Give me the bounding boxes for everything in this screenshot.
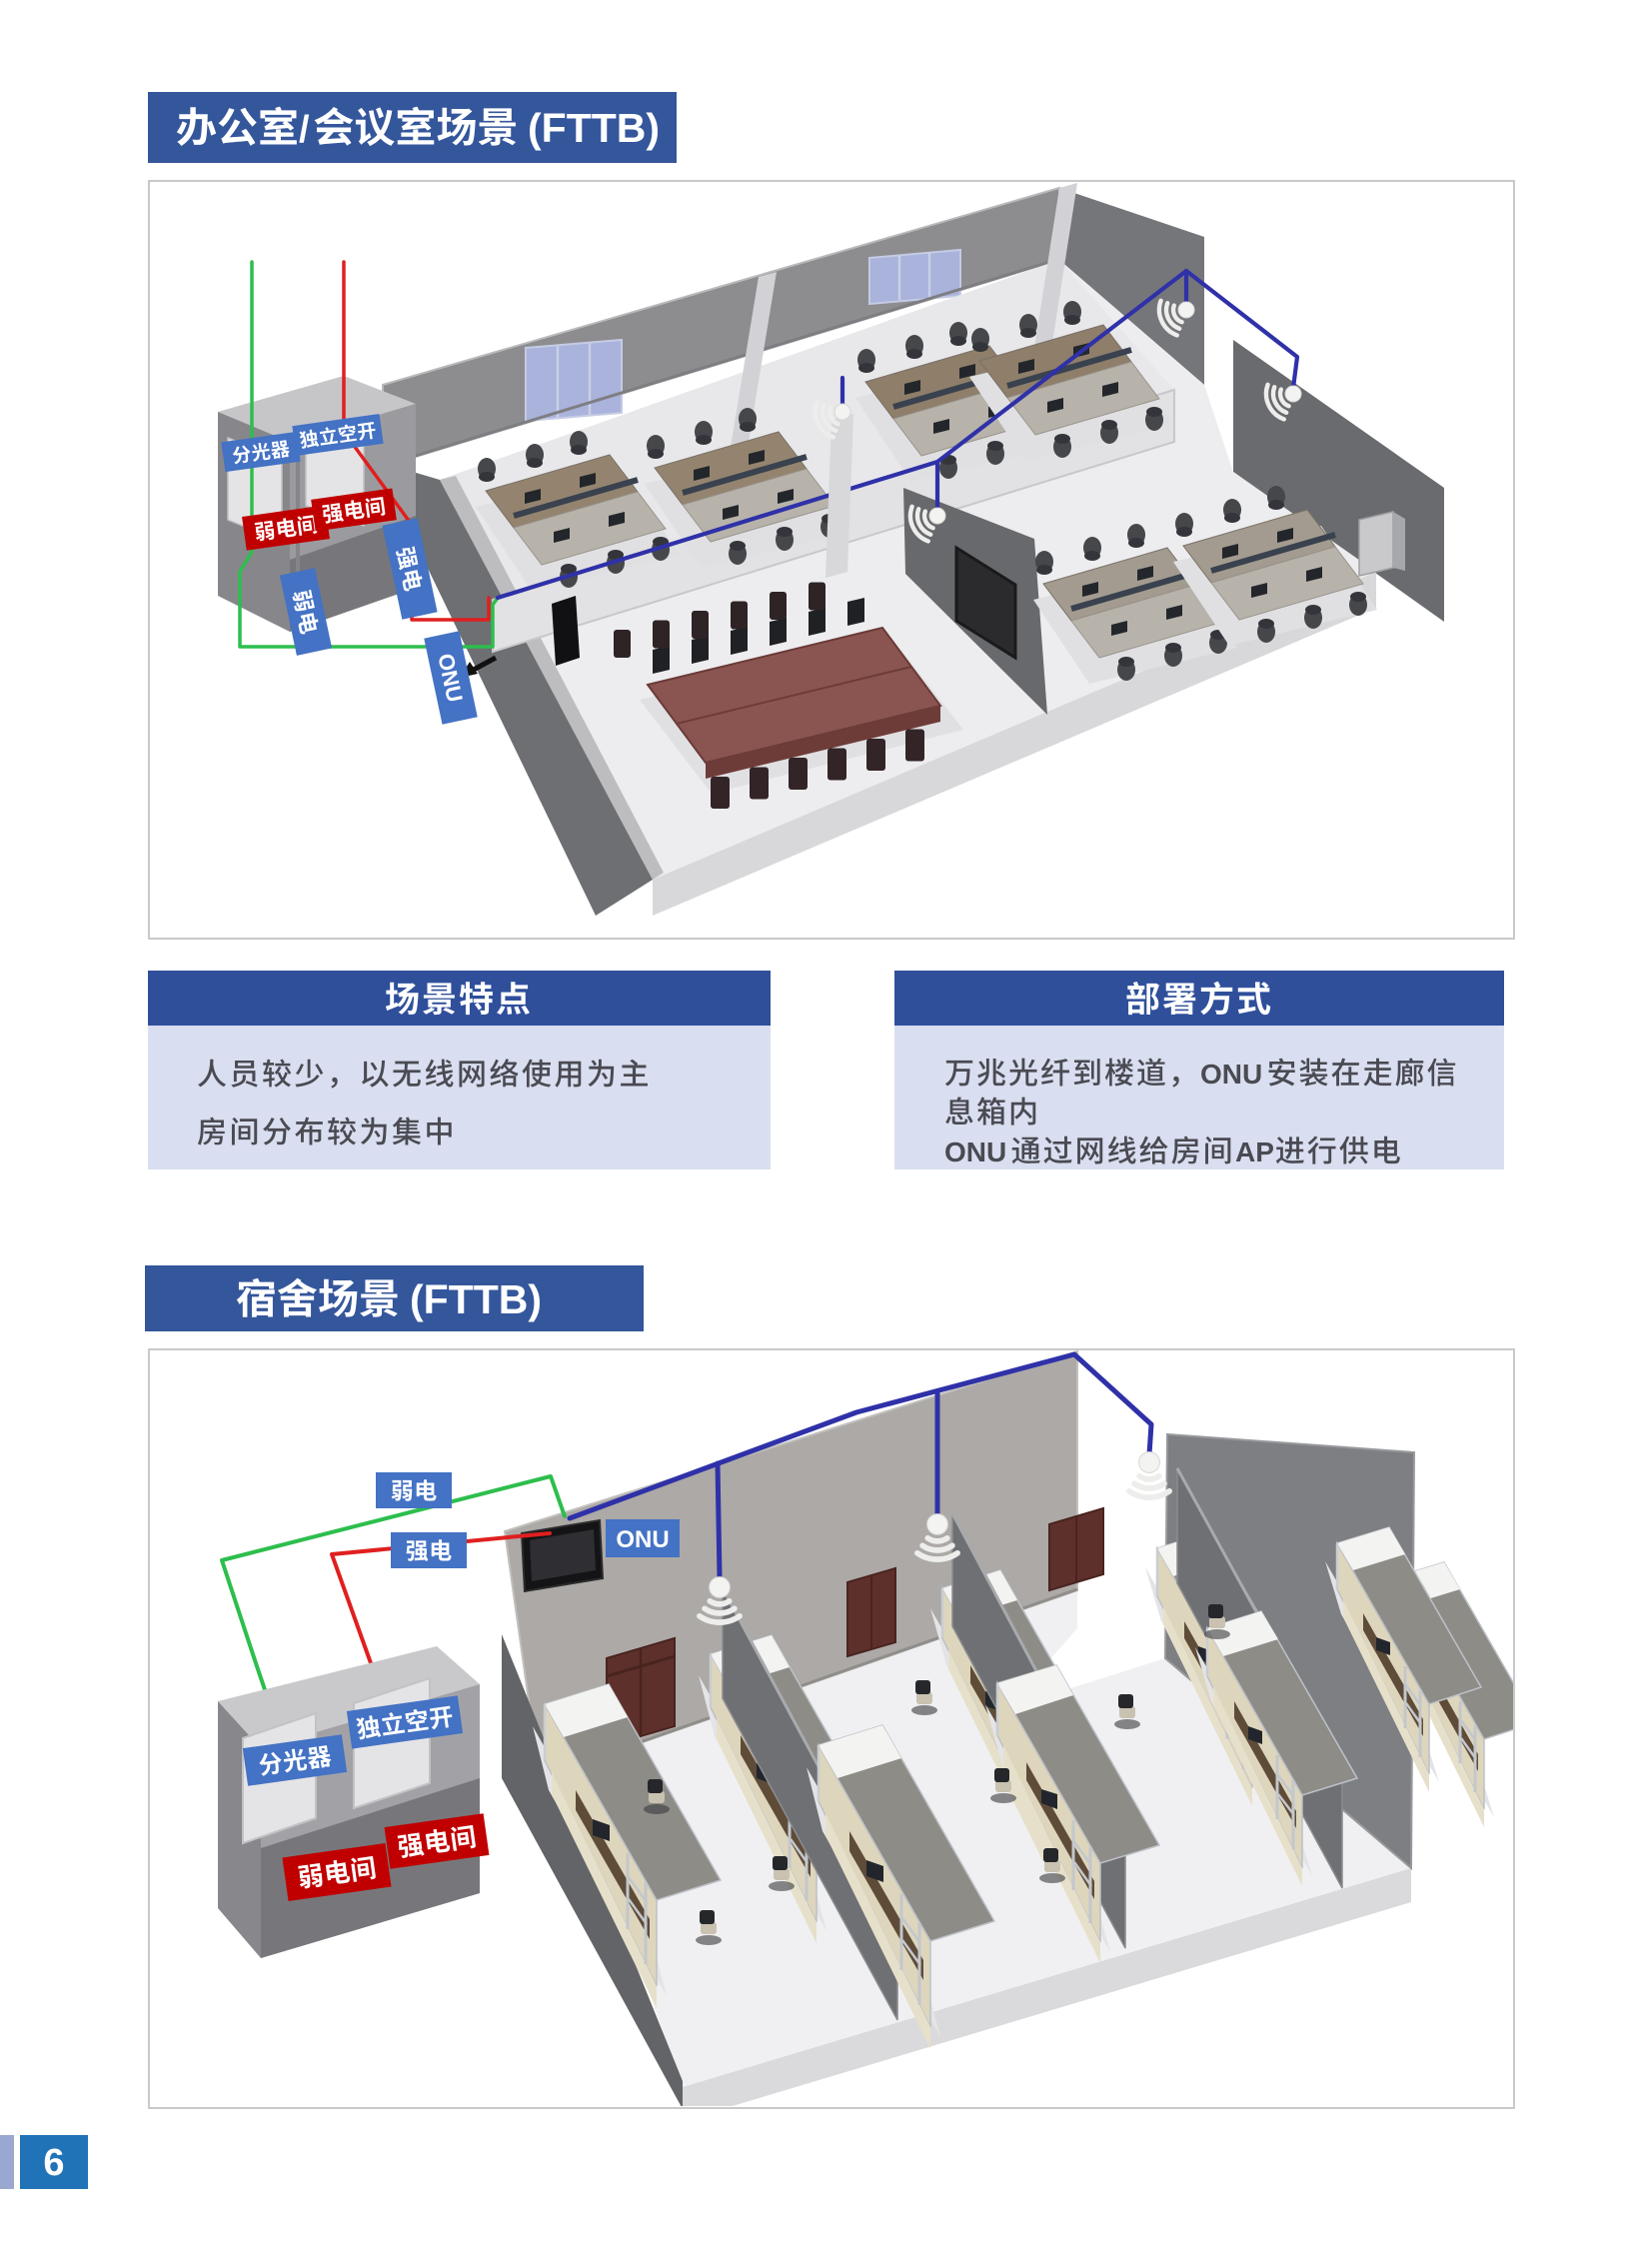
svg-text:(FTTB): (FTTB) [410,1276,542,1322]
svg-text:ONU: ONU [1200,1059,1262,1090]
svg-text:(FTTB): (FTTB) [528,105,660,151]
svg-text:ONU: ONU [944,1136,1006,1167]
svg-text:ONU: ONU [616,1526,669,1553]
svg-text:6: 6 [43,2142,64,2184]
svg-text:AP: AP [1235,1136,1274,1167]
svg-text:/: / [299,109,310,151]
